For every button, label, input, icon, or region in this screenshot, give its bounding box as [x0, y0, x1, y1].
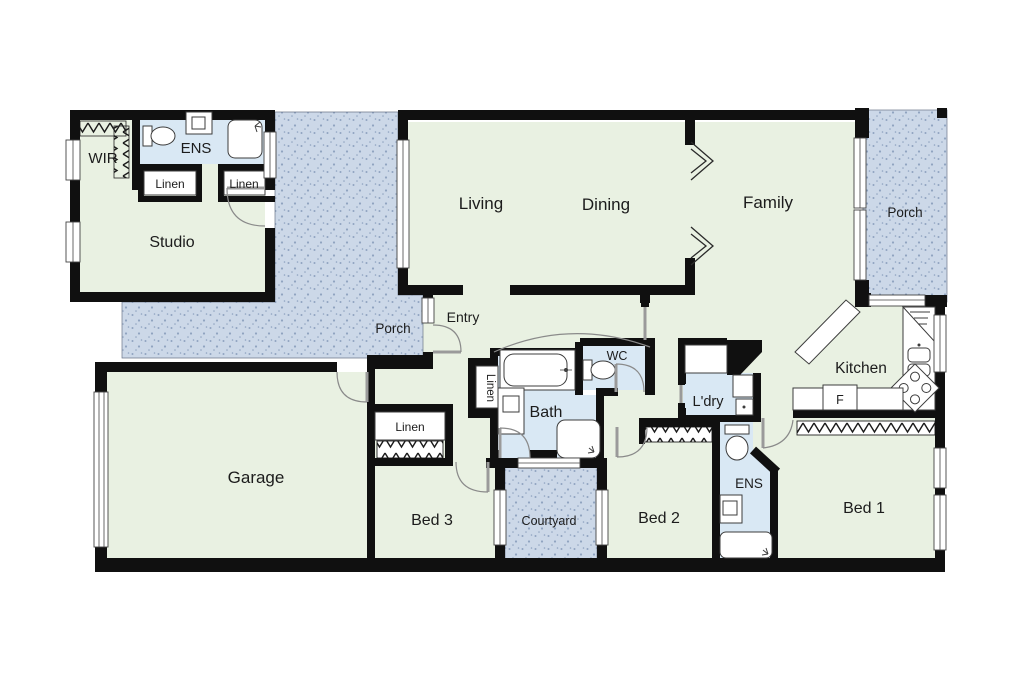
wc-toilet-icon [583, 360, 615, 380]
bed1-robe [797, 421, 935, 435]
room-label-bed1: Bed 1 [843, 500, 885, 517]
room-label-studio-linen-left: Linen [155, 177, 184, 191]
room-label-studio-linen-right: Linen [229, 177, 258, 191]
bath-vanity-icon [498, 388, 524, 434]
bathtub-icon [500, 350, 575, 390]
room-label-wir: WIR [88, 150, 117, 167]
room-label-entry: Entry [447, 309, 480, 325]
bed2-robe [645, 427, 712, 442]
room-label-garage: Garage [228, 468, 285, 487]
floor-plan: WIR ENS Linen Linen Studio Living Dining… [0, 0, 1024, 683]
laundry-bench-icon [685, 345, 727, 373]
room-label-rear-ens: ENS [735, 476, 763, 491]
room-label-porch-right: Porch [887, 205, 922, 220]
room-label-bed3: Bed 3 [411, 512, 453, 529]
room-label-hall-linen: Linen [484, 374, 496, 402]
floor-plan-svg: WIR ENS Linen Linen Studio Living Dining… [0, 0, 1024, 683]
room-label-courtyard: Courtyard [522, 514, 577, 528]
basin-icon [186, 112, 212, 134]
room-label-studio-ens: ENS [181, 140, 212, 157]
room-label-family: Family [743, 193, 794, 212]
room-label-studio: Studio [149, 234, 194, 251]
room-label-wc: WC [607, 349, 628, 363]
room-label-bed3-linen: Linen [395, 420, 424, 434]
garage-door [94, 392, 108, 547]
rear-ens-toilet-icon [725, 425, 749, 460]
laundry-sink-icon [733, 375, 753, 397]
toilet-icon [143, 126, 175, 146]
room-label-kitchen: Kitchen [835, 360, 887, 377]
room-label-dining: Dining [582, 195, 630, 214]
room-label-laundry: L'dry [693, 394, 725, 410]
room-label-bed2: Bed 2 [638, 510, 680, 527]
shower-icon [228, 120, 262, 158]
room-label-bath: Bath [530, 404, 563, 421]
room-label-living: Living [459, 194, 503, 213]
rear-ens-vanity-icon [720, 495, 742, 523]
bed3-robe [377, 441, 443, 458]
room-label-fridge: F [836, 393, 844, 407]
rear-ens-shower-icon [720, 532, 772, 558]
room-label-porch-central: Porch [375, 321, 410, 336]
